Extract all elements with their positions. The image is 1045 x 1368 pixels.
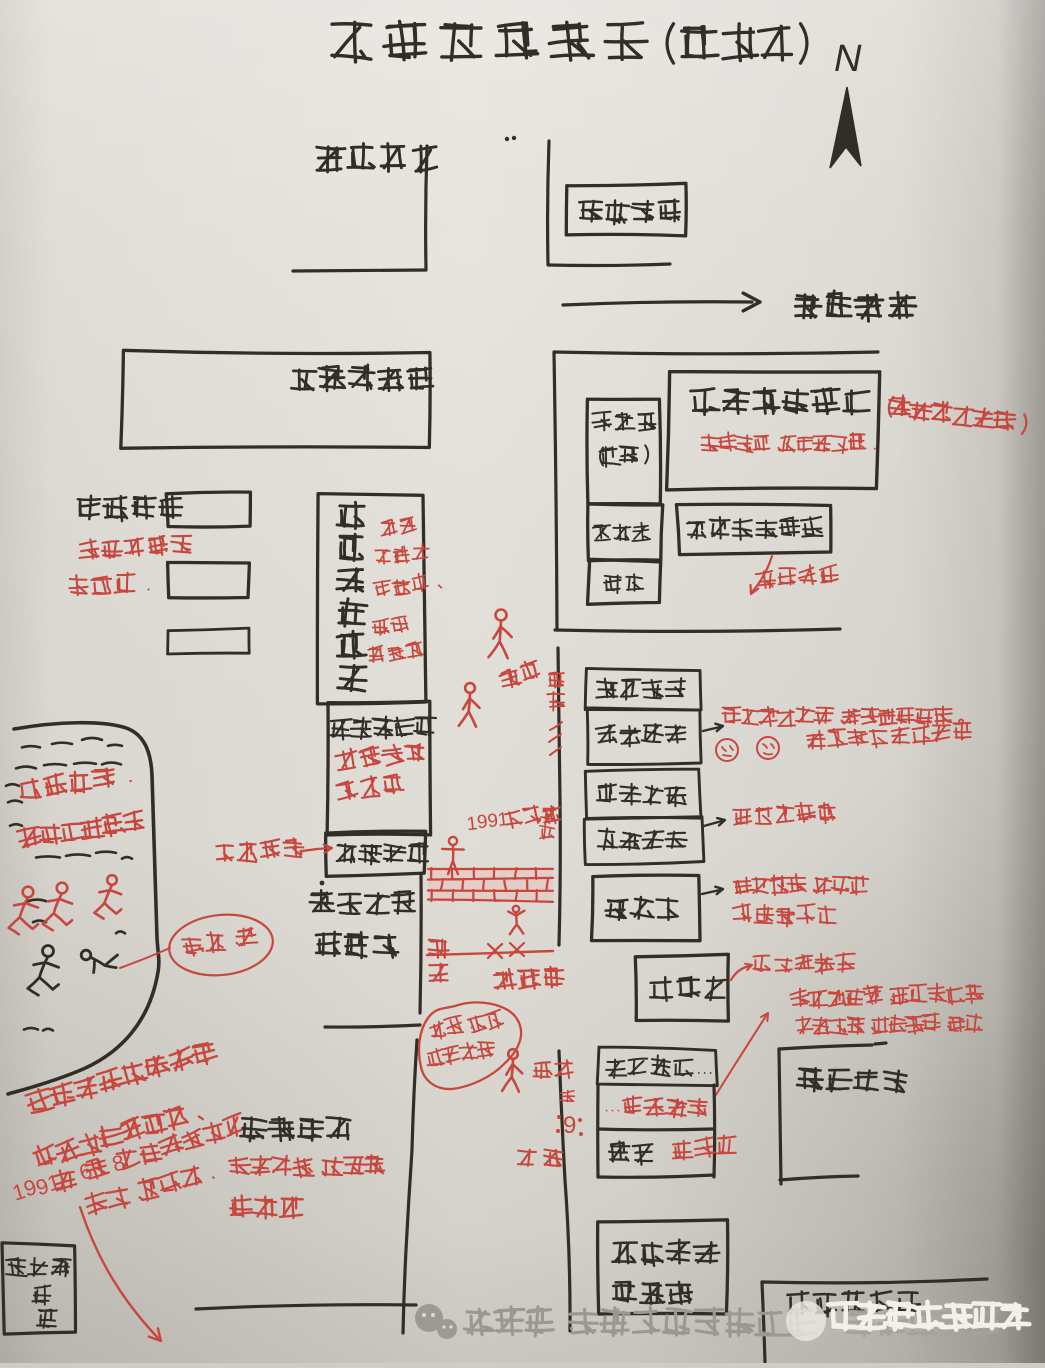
svg-text:1: 1 [497, 809, 510, 831]
svg-text:9: 9 [563, 1112, 576, 1139]
svg-text:N: N [834, 38, 862, 80]
